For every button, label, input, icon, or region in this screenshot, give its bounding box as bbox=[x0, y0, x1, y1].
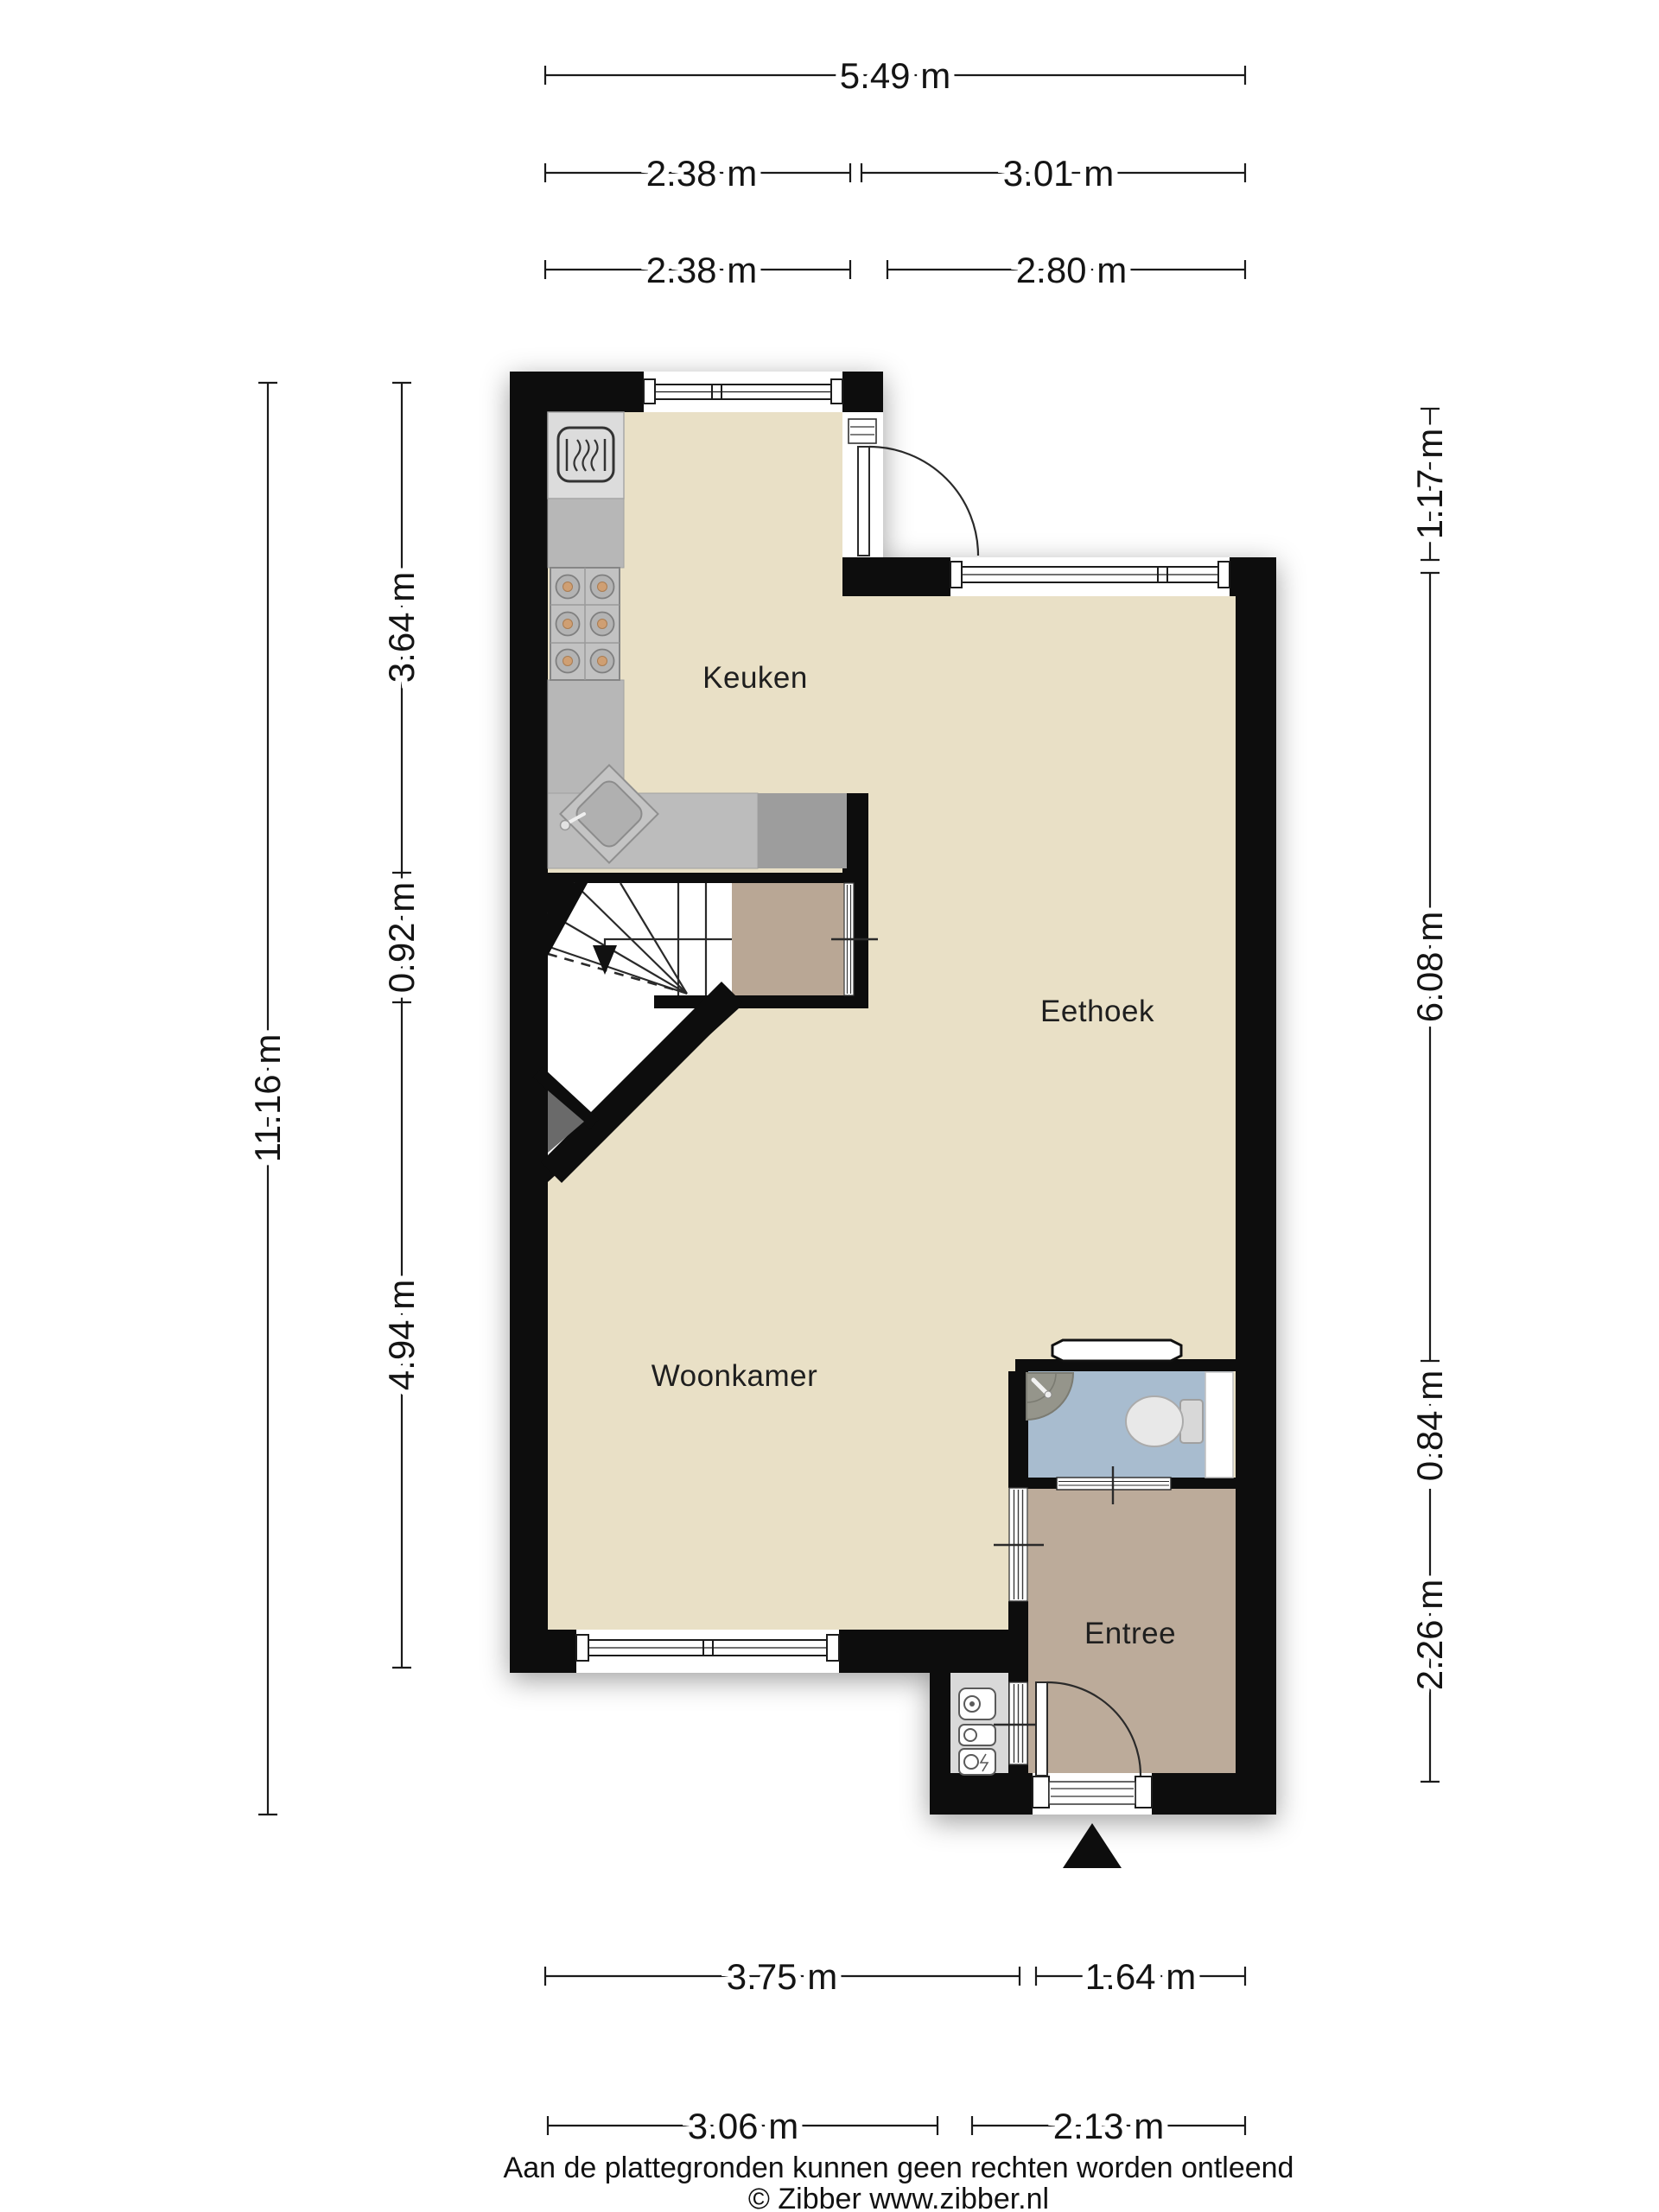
floor-plan-page: Keuken Eethoek Woonkamer Entree 5.49 m 2… bbox=[0, 0, 1659, 2212]
meter-icons bbox=[959, 1688, 995, 1775]
dim-top-right-b: 2.80 m bbox=[1016, 250, 1127, 290]
dim-top-total: 5.49 m bbox=[840, 55, 950, 96]
kitchen-door-leaf bbox=[858, 447, 869, 556]
dining-window bbox=[950, 557, 1230, 596]
footer-copyright: © Zibber www.zibber.nl bbox=[748, 2183, 1049, 2212]
dim-bottom-living-b: 3.06 m bbox=[688, 2106, 798, 2146]
toilet-duct bbox=[1205, 1372, 1233, 1478]
label-living: Woonkamer bbox=[652, 1359, 818, 1393]
front-door-leaf bbox=[1036, 1682, 1047, 1776]
kitchen-door-swing bbox=[869, 447, 978, 556]
living-window bbox=[576, 1630, 839, 1673]
dim-right-dining: 6.08 m bbox=[1409, 912, 1450, 1022]
dim-right-toilet: 0.84 m bbox=[1409, 1370, 1450, 1481]
dim-bottom-living-a: 3.75 m bbox=[727, 1956, 837, 1997]
dim-left-kitchen: 3.64 m bbox=[381, 572, 422, 683]
dim-bottom-entry-b: 2.13 m bbox=[1053, 2106, 1164, 2146]
label-kitchen: Keuken bbox=[702, 661, 808, 695]
label-dining: Eethoek bbox=[1040, 995, 1154, 1028]
dim-top-left-b: 2.38 m bbox=[646, 250, 757, 290]
floor-closet bbox=[732, 883, 844, 995]
stove-icon bbox=[550, 568, 620, 680]
dim-right-step: 1.17 m bbox=[1409, 429, 1450, 539]
footer-disclaimer: Aan de plattegronden kunnen geen rechten… bbox=[504, 2152, 1294, 2184]
label-entry: Entree bbox=[1084, 1617, 1176, 1650]
counter-dark-block bbox=[758, 793, 847, 868]
dim-left-total: 11.16 m bbox=[247, 1034, 288, 1163]
radiator-icon bbox=[1052, 1340, 1181, 1361]
dim-left-living: 4.94 m bbox=[381, 1280, 422, 1390]
dim-left-stairs: 0.92 m bbox=[381, 882, 422, 993]
dim-top-left-a: 2.38 m bbox=[646, 153, 757, 194]
toilet-icon bbox=[1126, 1396, 1203, 1446]
footer: Aan de plattegronden kunnen geen rechten… bbox=[504, 2152, 1294, 2212]
dim-top-right-a: 3.01 m bbox=[1003, 153, 1114, 194]
dim-bottom-entry-a: 1.64 m bbox=[1085, 1956, 1196, 1997]
dim-right-entry: 2.26 m bbox=[1409, 1580, 1450, 1690]
kitchen-door bbox=[842, 412, 978, 557]
floor-gap bbox=[842, 596, 868, 793]
kitchen-window bbox=[644, 372, 842, 412]
entrance-arrow-icon bbox=[1063, 1823, 1122, 1868]
floor-plan-canvas: Keuken Eethoek Woonkamer Entree 5.49 m 2… bbox=[0, 0, 1659, 2212]
